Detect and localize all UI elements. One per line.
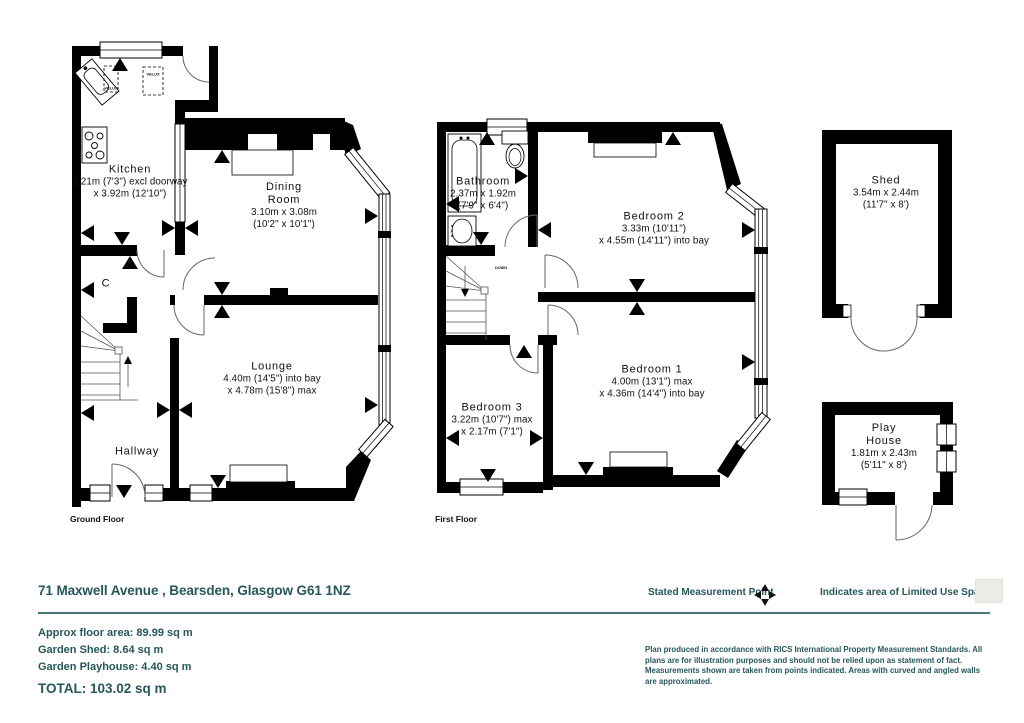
measurement-point-icon	[753, 583, 777, 612]
kitchen-fixtures	[75, 59, 163, 163]
ground-floor-walls	[72, 46, 378, 507]
kitchen-sink	[75, 59, 119, 105]
first-floor-walls	[437, 122, 767, 493]
bedroom2-wardrobe	[594, 143, 656, 157]
hall-window-left	[90, 485, 110, 501]
shed-doors	[843, 305, 925, 351]
floorplan-page: Kitchen 2.21m (7'3") excl doorway x 3.92…	[0, 0, 1024, 723]
kitchen-window	[100, 42, 162, 58]
legend-limited-use: Indicates area of Limited Use Space	[820, 587, 991, 598]
toilet	[502, 131, 528, 168]
floor-areas: Approx floor area: 89.99 sq m Garden She…	[38, 625, 193, 676]
area-line: Garden Shed: 8.64 sq m	[38, 642, 193, 659]
ground-floor-plan	[72, 42, 393, 507]
total-area: TOTAL: 103.02 sq m	[38, 681, 167, 696]
measurement-arrows-first	[446, 132, 755, 482]
bedroom1-furniture	[610, 452, 667, 467]
disclaimer-text: Plan produced in accordance with RICS In…	[645, 645, 990, 687]
limited-use-swatch	[975, 579, 1003, 603]
hall-window-right	[145, 485, 163, 501]
basin	[448, 216, 476, 246]
playhouse-plan	[822, 402, 956, 540]
bathroom-fixtures	[448, 131, 528, 246]
bedroom3-window	[460, 479, 503, 495]
floorplan-drawing	[0, 0, 1024, 565]
bay-window-bedrooms	[726, 184, 771, 451]
first-floor-stairs	[446, 256, 488, 340]
hob	[82, 127, 107, 163]
playhouse-door	[896, 505, 932, 540]
fireplace-hearth	[232, 150, 293, 175]
lounge-window	[190, 485, 212, 501]
footer-divider	[38, 612, 990, 614]
first-floor-plan	[437, 119, 770, 495]
shed-walls	[822, 130, 952, 318]
shed-plan	[822, 130, 952, 351]
area-line: Garden Playhouse: 4.40 sq m	[38, 659, 193, 676]
property-address: 71 Maxwell Avenue , Bearsden, Glasgow G6…	[38, 583, 351, 598]
area-line: Approx floor area: 89.99 sq m	[38, 625, 193, 642]
ground-floor-windows	[90, 42, 393, 501]
velux-skylight	[143, 67, 163, 95]
lounge-furniture	[230, 465, 287, 482]
glazed-opening	[175, 124, 185, 222]
